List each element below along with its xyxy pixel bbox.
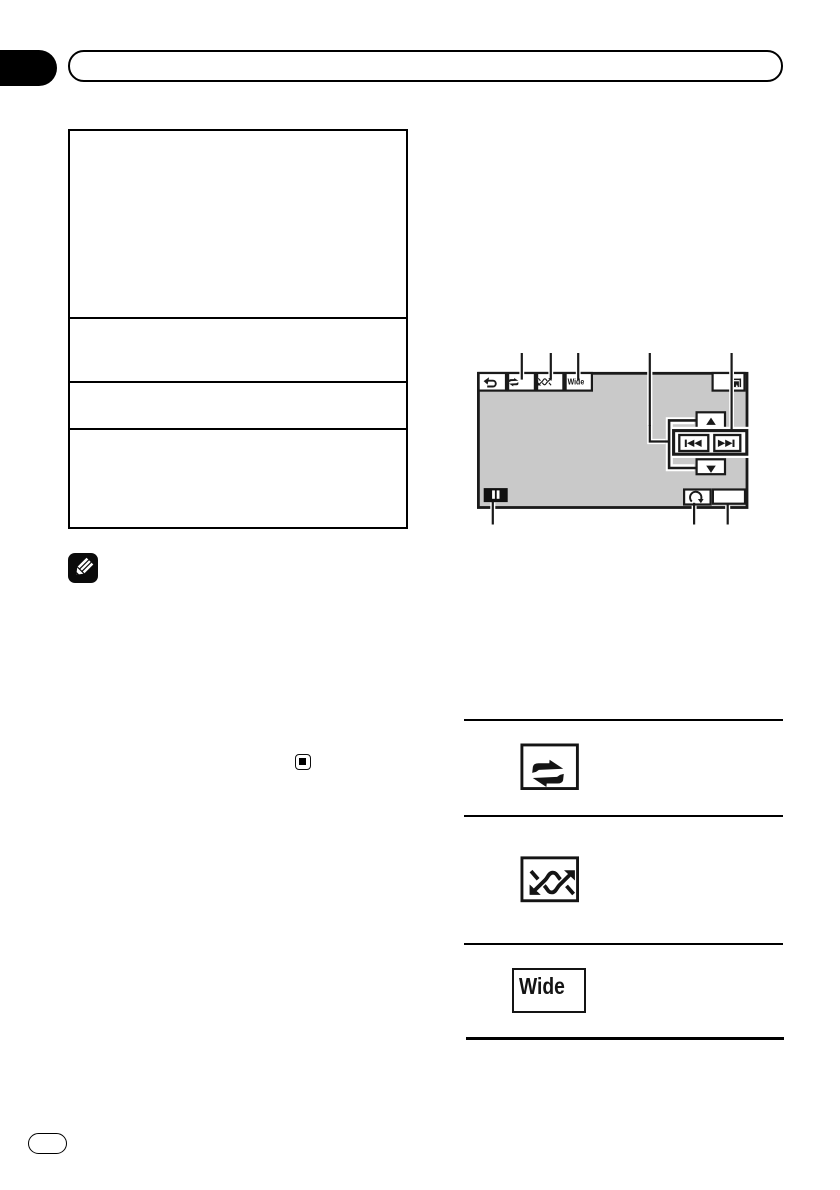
svg-text:Wide: Wide <box>568 377 585 387</box>
